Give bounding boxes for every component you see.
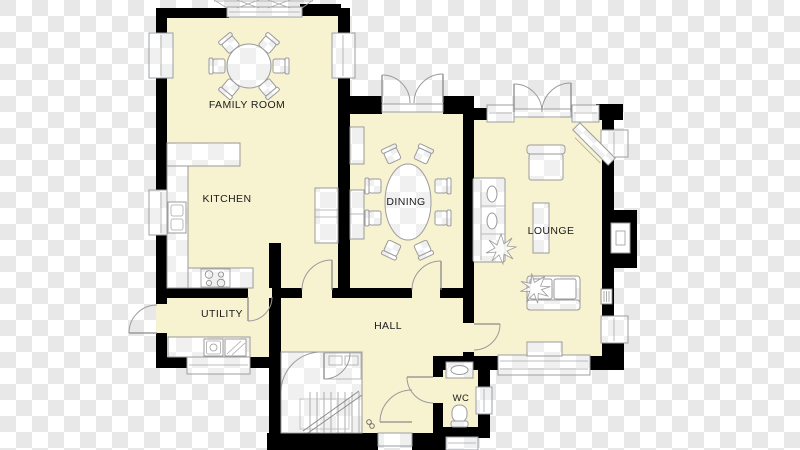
wall-segment [250,357,281,368]
cabinet [350,190,364,239]
wall-segment [156,288,248,298]
sideboard [527,342,562,356]
room-label-wc: WC [453,393,470,404]
wall-segment [478,357,490,388]
wall-segment [332,288,412,298]
french-door-sill [382,104,443,112]
stair-area [281,352,362,433]
window [446,437,478,450]
hall-upper-floor [281,298,463,357]
cabinet [350,127,364,164]
kitchen-counter [167,143,240,166]
washing-machine [204,339,223,356]
wall-segment [440,288,474,298]
room-label-utility: UTILITY [201,308,243,320]
wc-doorway [433,377,443,403]
toilet [451,405,468,427]
radiator [601,289,612,304]
window [601,316,628,343]
wall-segment [300,4,341,16]
window [487,105,514,122]
wall-segment [338,8,350,33]
utility-doorway [248,288,272,298]
wall-segment [269,243,281,288]
chair [365,178,381,194]
kitchen-sink [168,202,186,233]
wc-sink [446,362,473,378]
wall-segment [272,288,302,298]
utility-back-doorway [156,304,167,333]
armchair [527,145,565,180]
wall-segment [433,357,443,377]
kitchen-doorway [302,288,332,298]
chair [365,210,381,226]
chair [435,210,451,226]
chair [273,58,289,74]
wall-segment [590,356,624,370]
wall-segment [156,8,167,33]
window [498,355,590,375]
staircase [281,352,362,433]
dining-doorway [412,288,440,298]
wall-segment [156,78,167,190]
wall-segment [340,96,382,114]
window [476,387,492,414]
kitchen-counter [188,268,253,288]
lounge-doorway [463,323,474,352]
room-label-family-room: FAMILY ROOM [209,99,285,111]
screenshot: FAMILY ROOM KITCHEN DINING LOUNGE UTILIT… [0,0,800,450]
wall-segment [478,414,490,438]
chair [209,58,225,74]
appliance [225,339,246,356]
wall-segment [443,96,466,114]
tall-unit [315,188,338,243]
room-label-hall: HALL [374,320,402,332]
wall-segment [596,104,623,120]
front-door-threshold [378,433,412,446]
chair [435,178,451,194]
window [572,105,599,122]
wall-segment [156,357,187,368]
floor-plan: FAMILY ROOM KITCHEN DINING LOUNGE UTILIT… [0,0,800,450]
window [149,33,173,78]
wall-segment [267,433,378,450]
wall-segment [433,427,447,450]
wall-segment [269,298,281,450]
room-label-dining: DINING [386,196,425,208]
fireplace-flue [611,223,630,253]
room-label-lounge: LOUNGE [528,225,575,237]
window [187,356,250,374]
window [332,33,355,78]
room-label-kitchen: KITCHEN [203,193,252,205]
